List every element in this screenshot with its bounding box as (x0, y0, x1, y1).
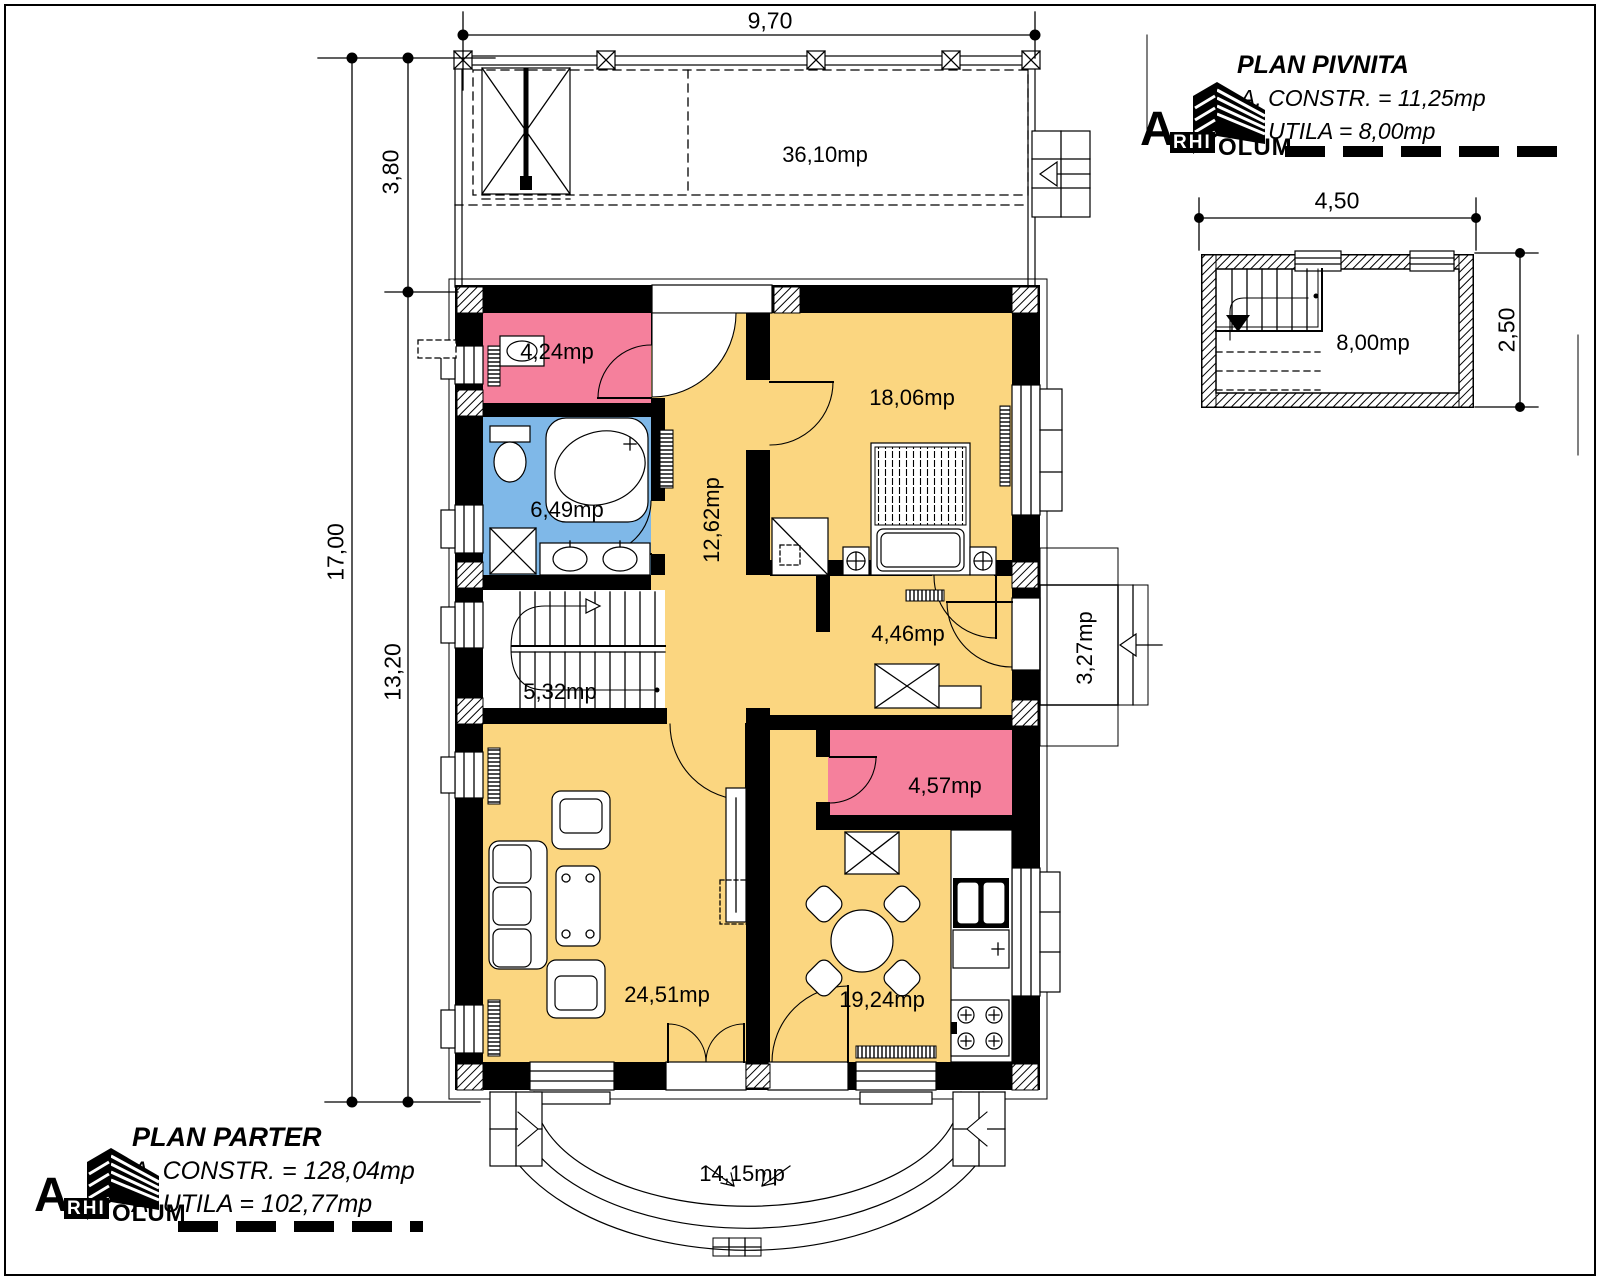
room-label-pantry: 4,57mp (908, 775, 981, 797)
dim-left-upper-label: 3,80 (380, 150, 403, 195)
flue-dashed-box (418, 340, 456, 358)
dim-basement-width-label: 4,50 (1315, 190, 1360, 213)
dim-basement-depth-label: 2,50 (1496, 308, 1519, 353)
room-label-terrace-bottom: 14,15mp (699, 1163, 785, 1185)
drawing-sheet: 9,70 3,80 17,00 13,20 4,50 2,50 36,10mp … (0, 0, 1600, 1280)
parter-title-rule (178, 1221, 423, 1232)
top-terrace (454, 51, 1090, 287)
dim-left-total-label: 17,00 (325, 523, 348, 581)
terrace-side-steps (1032, 131, 1090, 217)
room-label-stairs: 5,32mp (523, 681, 596, 703)
room-label-basement: 8,00mp (1336, 332, 1409, 354)
logo-letters-olum: OLUM (1218, 136, 1293, 160)
room-label-hallway: 12,62mp (701, 477, 723, 563)
dim-left-lower-label: 13,20 (382, 643, 405, 701)
logo-letters-rhi: RHI (64, 1198, 109, 1219)
logo-letters-rhi: RHI (1170, 132, 1215, 153)
room-label-kitchen: 19,24mp (839, 989, 925, 1011)
room-label-wc: 4,24mp (520, 341, 593, 363)
arhivolum-logo-parter: A RHI OLUM (36, 1146, 186, 1246)
room-label-bathroom: 6,49mp (530, 499, 603, 521)
pivnita-title-rule (1285, 146, 1557, 157)
room-label-entry-hall: 4,46mp (871, 623, 944, 645)
room-label-terrace-top: 36,10mp (782, 144, 868, 166)
room-label-porch: 3,27mp (1074, 611, 1096, 684)
room-label-living: 24,51mp (624, 984, 710, 1006)
terrace-skylight-box (482, 68, 570, 194)
arhivolum-logo-pivnita: A RHI OLUM (1142, 80, 1292, 180)
entrance-porch (1040, 548, 1162, 746)
plan-linework (0, 0, 1600, 1280)
logo-letters-olum: OLUM (112, 1202, 187, 1226)
pivnita-title: PLAN PIVNITA (1237, 51, 1409, 80)
room-label-bedroom: 18,06mp (869, 387, 955, 409)
dim-top-width-label: 9,70 (748, 10, 793, 33)
